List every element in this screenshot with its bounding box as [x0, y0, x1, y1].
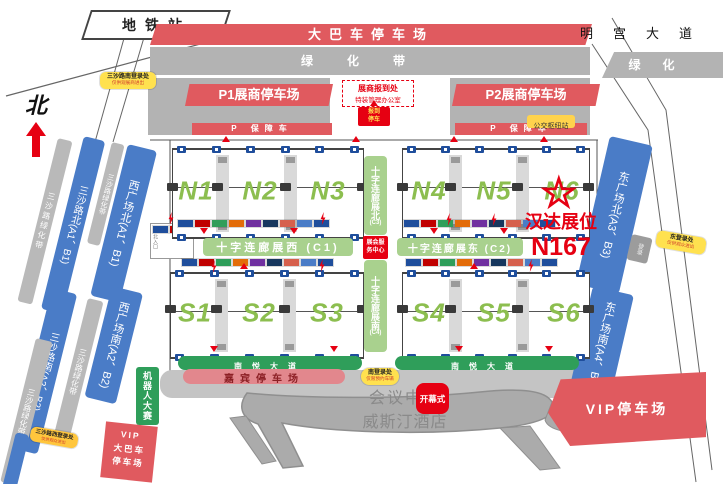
- dock: [167, 183, 178, 191]
- support-strip-west-label: P 保障车: [231, 124, 292, 133]
- bus-parking-label: 大巴车停车场: [308, 27, 434, 42]
- sansha-south-entrance-label: 三沙路南登录处 仅供观展商进出: [100, 72, 156, 89]
- dock: [397, 305, 408, 313]
- flow-arrow-icon: [330, 346, 338, 352]
- corridor-south-c4: 十字连廊展南 (C4): [364, 260, 387, 352]
- facility-markers: [178, 220, 329, 227]
- venue-line1: 会议中心: [335, 384, 475, 408]
- vip-bus-parking-box: VIP 大巴车 停车场: [100, 421, 158, 482]
- vip-parking-area: VIP停车场: [548, 372, 706, 446]
- booth-name: 汉达展位: [505, 212, 617, 233]
- gates-top: [407, 270, 585, 277]
- hall-s3-label: S3: [305, 297, 349, 328]
- service-center-label: 展会服务中心: [366, 240, 386, 254]
- dock: [445, 305, 456, 313]
- hall-n2-label: N2: [238, 175, 282, 206]
- hall-s2-label: S2: [237, 297, 281, 328]
- corridor-south-code: (C4): [370, 330, 382, 336]
- service-strip: [516, 279, 529, 352]
- dock: [165, 305, 176, 313]
- p2-parking-banner: P2展商停车场: [452, 84, 600, 106]
- venue-line2: 威斯汀酒店: [335, 408, 475, 432]
- south-avenue-east-label: 南悦大道: [451, 362, 523, 371]
- corridor-north-c3: 十字连廊展北 (C3): [364, 156, 387, 235]
- registration-line2: 特装管理办公室: [346, 94, 410, 104]
- corridor-east-label: 十字连廊展东 (C2): [408, 240, 512, 255]
- registration-arrow-icon: [370, 100, 378, 106]
- flow-arrow-icon: [500, 228, 508, 234]
- hall-s5-label: S5: [472, 297, 516, 328]
- dock: [397, 183, 408, 191]
- green-belt-band: 绿化带: [150, 47, 590, 75]
- north-arrow-icon: [25, 122, 47, 158]
- bus-hub-label: 公交枢纽站: [534, 123, 569, 130]
- hall-n5-label: N5: [472, 175, 516, 206]
- guest-parking-label: 嘉宾停车场: [224, 374, 304, 385]
- flow-arrow-icon: [430, 228, 438, 234]
- north-entry-label: 北入口: [152, 234, 159, 249]
- exhibition-map: 地铁站 北 大巴车停车场 明宫大道 绿化带 绿化 P1展商停车场 P2展商停车场…: [0, 0, 723, 484]
- dock: [211, 305, 222, 313]
- opening-ceremony-box: 开幕式: [416, 383, 449, 414]
- south-entrance-label: 南登录处 仅限预约车辆: [361, 368, 399, 385]
- robot-contest-box: 机器人大赛: [136, 367, 159, 425]
- support-strip-west: P 保障车: [192, 123, 332, 135]
- registration-parking-box: 报到停车: [358, 107, 390, 126]
- flow-arrow-icon: [545, 346, 553, 352]
- dock: [512, 183, 523, 191]
- p1-parking-banner: P1展商停车场: [185, 84, 333, 106]
- dock: [212, 183, 223, 191]
- registration-line1: 展商报到处: [346, 83, 410, 94]
- gates-top: [177, 146, 359, 153]
- dock: [512, 305, 523, 313]
- flow-arrow-icon: [450, 136, 458, 142]
- south-avenue-east: 南悦大道: [395, 356, 579, 370]
- corridor-north-code: (C3): [370, 220, 382, 226]
- dock: [445, 183, 456, 191]
- corridor-west-c1: 十字连廊展西 (C1): [203, 238, 353, 256]
- booth-number: N167: [505, 233, 617, 262]
- flow-arrow-icon: [290, 228, 298, 234]
- registration-parking-label: 报到停车: [366, 109, 382, 123]
- guest-parking-band: 嘉宾停车场: [183, 369, 345, 384]
- north-label: 北: [16, 88, 56, 120]
- flow-arrow-icon: [352, 136, 360, 142]
- gates-top: [175, 270, 359, 277]
- green-belt-label: 绿化带: [301, 54, 439, 68]
- p2-parking-label: P2展商停车场: [486, 87, 567, 102]
- south-avenue-west: 南悦大道: [178, 356, 362, 370]
- dock: [583, 305, 594, 313]
- bus-hub-label-box: 公交枢纽站: [527, 115, 575, 128]
- hall-n3-label: N3: [306, 175, 350, 206]
- minggong-avenue-label: 明宫大道: [580, 23, 723, 42]
- service-center-box: 展会服务中心: [363, 236, 388, 259]
- booth-callout: 汉达展位 N167: [505, 212, 617, 261]
- compass-north: 北: [16, 88, 56, 163]
- p1-parking-label: P1展商停车场: [219, 87, 300, 102]
- facility-markers: [182, 259, 333, 266]
- venue-label: 会议中心 威斯汀酒店: [335, 384, 475, 432]
- robot-contest-label: 机器人大赛: [141, 371, 154, 421]
- bus-parking-banner: 大巴车停车场: [150, 24, 592, 45]
- dock: [279, 305, 290, 313]
- registration-office: 展商报到处 特装管理办公室: [342, 80, 414, 107]
- flow-arrow-icon: [470, 263, 478, 269]
- flow-arrow-icon: [455, 346, 463, 352]
- corridor-west-label: 十字连廊展西 (C1): [216, 239, 339, 255]
- green-belt-right-label: 绿化: [628, 58, 696, 72]
- corridor-south-label: 十字连廊展南: [369, 276, 382, 330]
- dock: [280, 183, 291, 191]
- south-entrance-line2: 仅限预约车辆: [363, 377, 396, 382]
- corridor-north-label: 十字连廊展北: [369, 166, 382, 220]
- sansha-south-entrance-line2: 仅供观展商进出: [103, 81, 153, 86]
- booth-star-icon: ☆: [540, 172, 578, 214]
- vip-parking-label: VIP停车场: [586, 399, 669, 419]
- service-strip: [283, 279, 296, 352]
- gates-top: [407, 146, 585, 153]
- green-belt-band-right: 绿化: [602, 52, 723, 78]
- hall-s6-label: S6: [542, 297, 586, 328]
- hall-group-se: S4 S5 S6: [402, 272, 590, 359]
- flow-arrow-icon: [240, 263, 248, 269]
- dock: [583, 183, 594, 191]
- opening-ceremony-label: 开幕式: [420, 393, 446, 405]
- flow-arrow-icon: [222, 136, 230, 142]
- flow-arrow-icon: [540, 136, 548, 142]
- flow-arrow-icon: [200, 228, 208, 234]
- flow-arrow-icon: [210, 346, 218, 352]
